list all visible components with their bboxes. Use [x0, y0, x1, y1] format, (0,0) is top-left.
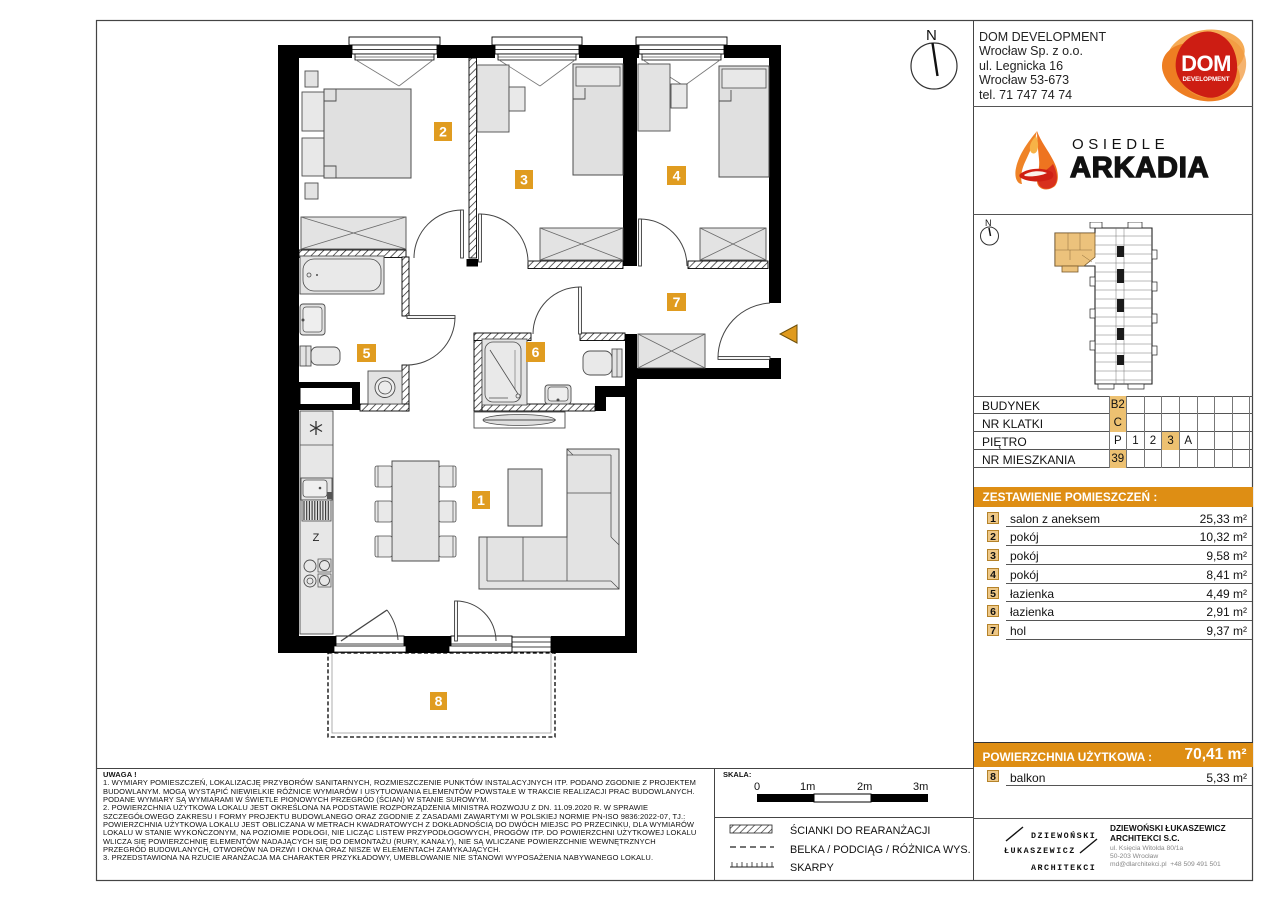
svg-text:3m: 3m: [913, 781, 928, 793]
svg-text:5: 5: [363, 345, 371, 361]
svg-text:2m: 2m: [857, 781, 872, 793]
svg-text:8: 8: [435, 693, 443, 709]
svg-text:1: 1: [477, 492, 485, 508]
svg-text:2: 2: [439, 123, 447, 139]
svg-text:4: 4: [673, 167, 681, 183]
svg-text:6: 6: [532, 344, 540, 360]
svg-text:ŁUKASZEWICZ: ŁUKASZEWICZ: [1004, 846, 1076, 856]
svg-text:DOM: DOM: [1181, 51, 1231, 76]
svg-text:DEVELOPMENT: DEVELOPMENT: [1182, 76, 1229, 83]
svg-text:DZIEWOŃSKI: DZIEWOŃSKI: [1031, 830, 1096, 841]
svg-text:ARCHITEKCI: ARCHITEKCI: [1031, 863, 1096, 873]
svg-text:Z: Z: [313, 532, 320, 544]
svg-text:3: 3: [520, 171, 528, 187]
svg-text:N: N: [926, 27, 937, 44]
svg-text:7: 7: [673, 294, 681, 310]
svg-text:N: N: [985, 218, 992, 228]
svg-text:1m: 1m: [800, 781, 815, 793]
svg-text:0: 0: [754, 781, 760, 793]
